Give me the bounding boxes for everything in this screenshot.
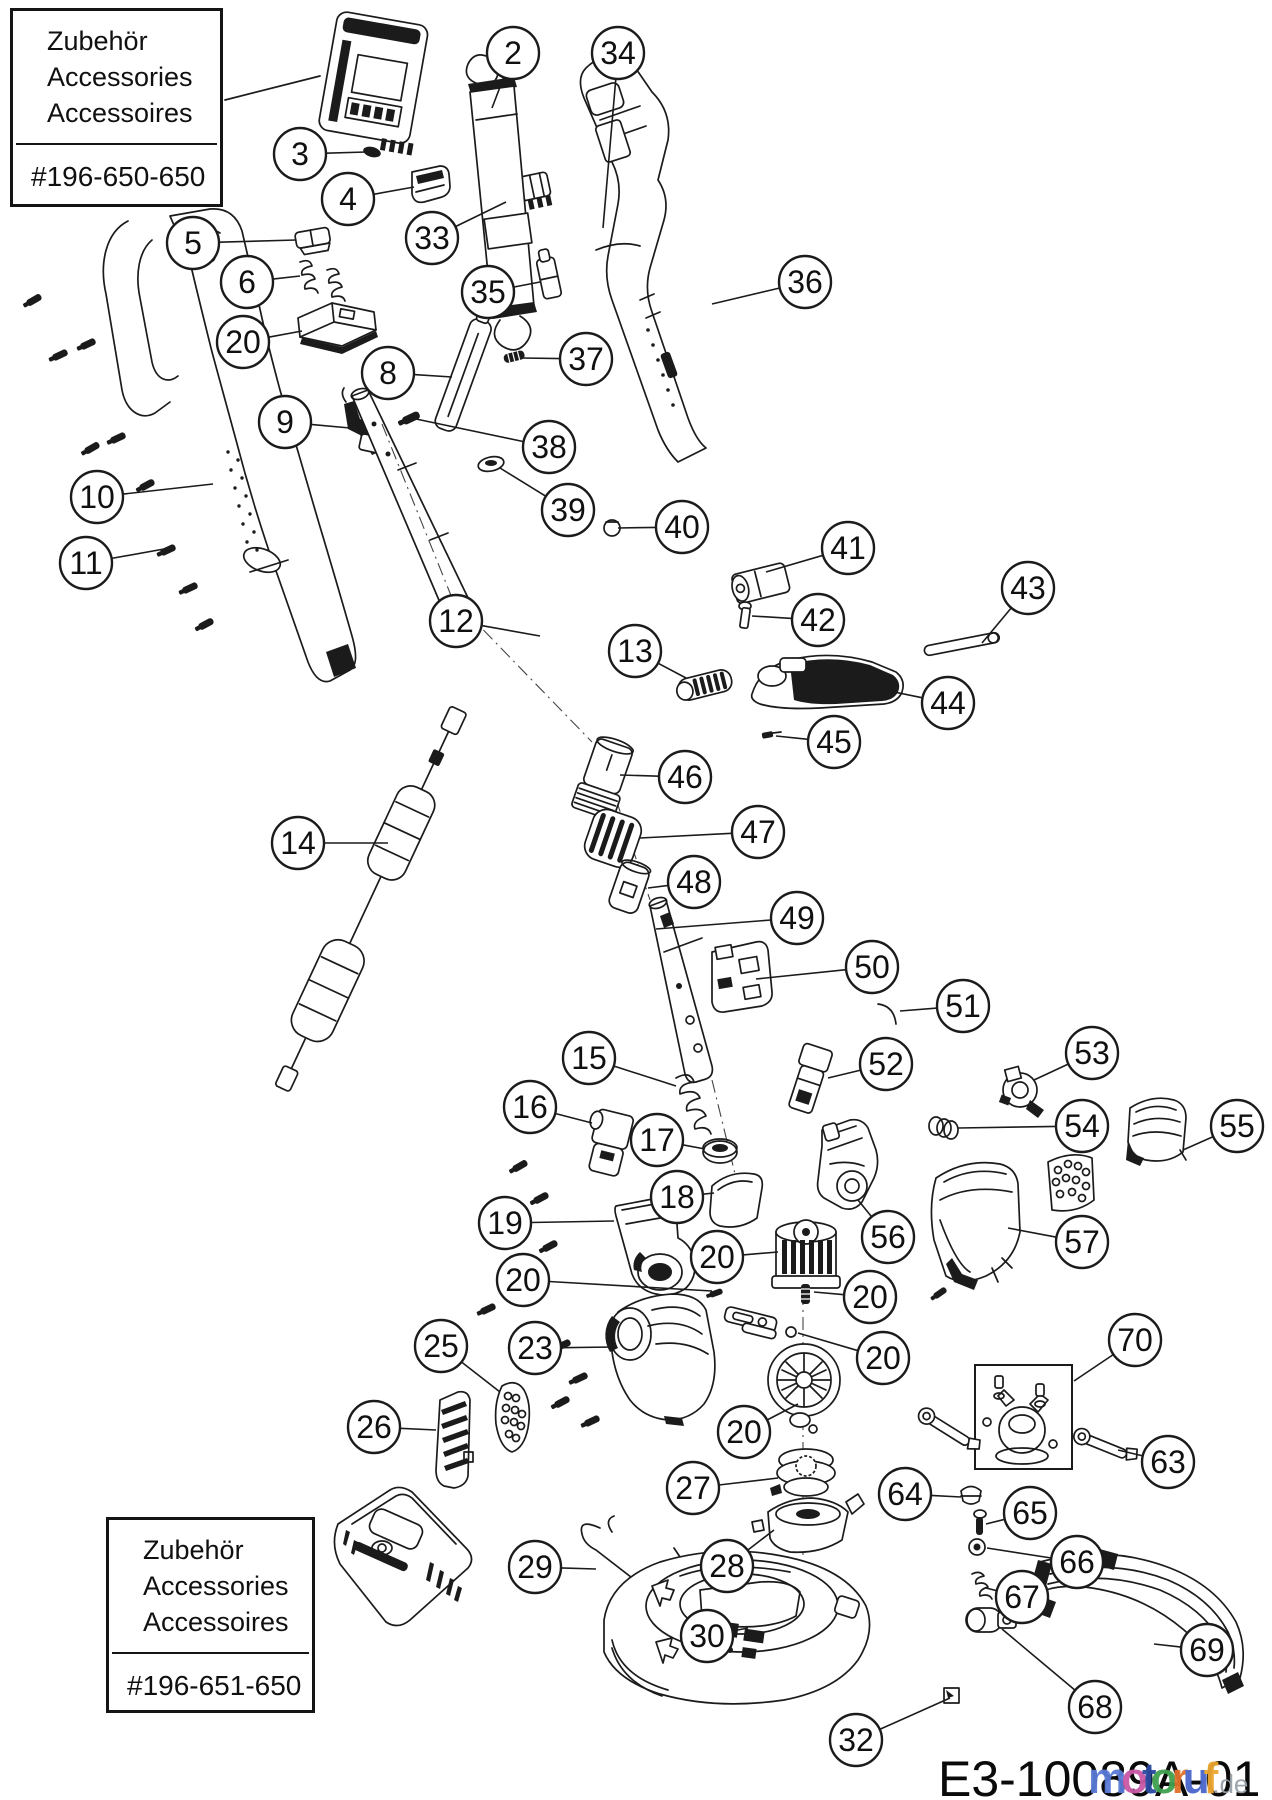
part-head-housing-23 bbox=[605, 1294, 715, 1426]
callout-number: 19 bbox=[487, 1205, 523, 1241]
callout-number: 51 bbox=[945, 988, 981, 1024]
callout-number: 36 bbox=[787, 264, 823, 300]
callout-number: 32 bbox=[838, 1722, 874, 1758]
watermark-motoruf: motoruf.de bbox=[1088, 1754, 1248, 1800]
callout-leader-line bbox=[531, 1221, 614, 1223]
callout-65[interactable]: 65 bbox=[986, 1487, 1056, 1539]
part-switch-50 bbox=[712, 942, 772, 1012]
callout-leader-line bbox=[1002, 1629, 1075, 1690]
callout-number: 53 bbox=[1074, 1035, 1110, 1071]
callout-leader-line bbox=[683, 1145, 705, 1149]
callout-number: 5 bbox=[184, 225, 202, 261]
part-guard-half-55 bbox=[1126, 1098, 1186, 1166]
callout-leader-line bbox=[858, 1200, 872, 1217]
part-cam-53 bbox=[999, 1066, 1044, 1118]
callout-53[interactable]: 53 bbox=[1034, 1027, 1118, 1080]
callout-number: 41 bbox=[830, 530, 866, 566]
callout-26[interactable]: 26 bbox=[348, 1401, 436, 1453]
part-wrench-left bbox=[916, 1405, 984, 1456]
callout-leader-line bbox=[648, 885, 668, 888]
callout-number: 35 bbox=[470, 274, 506, 310]
callout-leader-line bbox=[416, 419, 524, 442]
callout-number: 49 bbox=[779, 900, 815, 936]
callout-6[interactable]: 6 bbox=[221, 256, 300, 308]
callout-number: 43 bbox=[1010, 570, 1046, 606]
callout-number: 12 bbox=[438, 603, 474, 639]
callout-number: 38 bbox=[531, 429, 567, 465]
callout-number: 46 bbox=[667, 759, 703, 795]
callout-number: 66 bbox=[1059, 1544, 1095, 1580]
callout-number: 20 bbox=[505, 1262, 541, 1298]
callout-number: 26 bbox=[356, 1409, 392, 1445]
callout-number: 44 bbox=[930, 685, 966, 721]
callout-number: 27 bbox=[675, 1470, 711, 1506]
part-clip-51 bbox=[878, 1004, 896, 1024]
callout-19[interactable]: 19 bbox=[479, 1197, 614, 1249]
callout-leader-line bbox=[561, 1568, 596, 1569]
callout-leader-line bbox=[776, 736, 808, 739]
part-motor-housing-upper bbox=[580, 56, 706, 462]
callout-leader-line bbox=[1074, 1355, 1113, 1382]
part-vent-26 bbox=[436, 1392, 473, 1488]
callout-number: 16 bbox=[512, 1089, 548, 1125]
callout-number: 28 bbox=[709, 1548, 745, 1584]
callout-leader-line bbox=[1183, 1137, 1213, 1150]
callout-leader-line bbox=[269, 331, 302, 337]
callout-leader-line bbox=[987, 1548, 1051, 1558]
callout-number: 4 bbox=[339, 181, 357, 217]
callout-leader-line bbox=[743, 1252, 778, 1255]
callout-11[interactable]: 11 bbox=[60, 537, 164, 589]
accessory-part-number: #196-650-650 bbox=[13, 161, 220, 193]
watermark-letter: t bbox=[1142, 1754, 1151, 1800]
callout-number: 2 bbox=[504, 35, 522, 71]
part-front-handle-44 bbox=[752, 655, 903, 708]
callout-number: 8 bbox=[379, 355, 397, 391]
box-divider bbox=[16, 143, 217, 145]
callout-leader-line bbox=[752, 616, 792, 618]
callout-leader-line bbox=[814, 1292, 844, 1295]
part-spool-housing-28 bbox=[752, 1494, 864, 1552]
callout-56[interactable]: 56 bbox=[858, 1200, 914, 1263]
callout-46[interactable]: 46 bbox=[620, 751, 711, 803]
callout-leader-line bbox=[958, 1126, 1056, 1128]
centerline bbox=[382, 424, 452, 598]
callout-20[interactable]: 20 bbox=[217, 316, 302, 368]
callout-15[interactable]: 15 bbox=[563, 1032, 676, 1086]
part-screw-45 bbox=[762, 731, 781, 739]
watermark-letter: o bbox=[1121, 1754, 1142, 1800]
callout-leader-line bbox=[326, 152, 366, 153]
callout-number: 20 bbox=[699, 1239, 735, 1275]
part-cable-14 bbox=[262, 700, 479, 1097]
callout-number: 55 bbox=[1219, 1108, 1255, 1144]
part-lock-lever-13 bbox=[674, 668, 734, 703]
callout-18[interactable]: 18 bbox=[651, 1171, 714, 1223]
part-screw-37 bbox=[503, 350, 526, 364]
callout-64[interactable]: 64 bbox=[879, 1468, 961, 1520]
part-motor-20 bbox=[772, 1220, 840, 1288]
part-springs-6 bbox=[300, 261, 345, 301]
centerline bbox=[466, 612, 592, 742]
callout-number: 20 bbox=[865, 1340, 901, 1376]
callout-20[interactable]: 20 bbox=[691, 1231, 778, 1283]
callout-12[interactable]: 12 bbox=[430, 595, 540, 647]
part-fan-head-20 bbox=[768, 1344, 840, 1433]
callout-leader-line bbox=[482, 626, 540, 636]
callout-number: 14 bbox=[280, 825, 316, 861]
callout-leader-line bbox=[273, 276, 300, 279]
box-leader-line bbox=[225, 76, 320, 100]
callout-number: 37 bbox=[568, 341, 604, 377]
part-spring-54 bbox=[929, 1117, 958, 1139]
callout-leader-line bbox=[311, 424, 350, 428]
part-mesh-insert bbox=[1048, 1155, 1094, 1211]
parts-diagram-page: 2343433563536208379381039401141431242134… bbox=[0, 0, 1272, 1800]
callout-25[interactable]: 25 bbox=[415, 1320, 500, 1392]
part-circlip-20 bbox=[786, 1327, 796, 1337]
callout-leader-line bbox=[986, 1519, 1005, 1524]
part-gearbox-56 bbox=[818, 1120, 878, 1209]
part-coupler-46 bbox=[571, 733, 638, 821]
part-battery bbox=[316, 11, 434, 156]
callout-4[interactable]: 4 bbox=[322, 173, 414, 225]
callout-leader-line bbox=[614, 1066, 676, 1086]
part-charger bbox=[334, 1487, 471, 1625]
callout-number: 48 bbox=[676, 864, 712, 900]
callout-number: 3 bbox=[291, 136, 309, 172]
accessory-part-number: #196-651-650 bbox=[109, 1670, 312, 1702]
callout-37[interactable]: 37 bbox=[522, 333, 612, 385]
callout-number: 52 bbox=[868, 1046, 904, 1082]
accessories-label-fr: Accessoires bbox=[109, 1604, 312, 1640]
callout-leader-line bbox=[112, 549, 164, 558]
callout-52[interactable]: 52 bbox=[828, 1038, 912, 1090]
callout-number: 6 bbox=[238, 264, 256, 300]
callout-32[interactable]: 32 bbox=[830, 1698, 950, 1766]
watermark-letter: f bbox=[1204, 1754, 1213, 1800]
callout-leader-line bbox=[900, 1008, 937, 1011]
part-mesh-25 bbox=[496, 1383, 530, 1452]
part-ring-17 bbox=[703, 1139, 737, 1163]
callout-number: 70 bbox=[1117, 1322, 1153, 1358]
callout-leader-line bbox=[555, 1114, 592, 1124]
watermark-letter: r bbox=[1172, 1754, 1183, 1800]
callout-number: 9 bbox=[276, 404, 294, 440]
callout-70[interactable]: 70 bbox=[1074, 1314, 1161, 1381]
callout-48[interactable]: 48 bbox=[648, 856, 720, 908]
callout-16[interactable]: 16 bbox=[504, 1081, 592, 1133]
watermark-word: motoruf bbox=[1088, 1754, 1212, 1800]
callout-number: 33 bbox=[414, 220, 450, 256]
callout-leader-line bbox=[618, 527, 656, 528]
part-washer-66 bbox=[969, 1539, 985, 1555]
watermark-letter: u bbox=[1183, 1754, 1204, 1800]
part-pin-20 bbox=[801, 1284, 810, 1304]
box-divider bbox=[112, 1652, 309, 1654]
callout-39[interactable]: 39 bbox=[500, 468, 594, 536]
callout-42[interactable]: 42 bbox=[752, 594, 844, 646]
part-cylinder-16 bbox=[578, 1107, 634, 1177]
part-adapter-35 bbox=[534, 248, 562, 300]
callout-number: 47 bbox=[740, 814, 776, 850]
callout-51[interactable]: 51 bbox=[900, 980, 989, 1032]
callout-leader-line bbox=[1034, 1064, 1068, 1080]
part-spring-15 bbox=[676, 1075, 711, 1134]
part-clip-32 bbox=[944, 1688, 959, 1703]
callout-number: 20 bbox=[726, 1414, 762, 1450]
callout-layer: 2343433563536208379381039401141431242134… bbox=[60, 27, 1263, 1766]
callout-40[interactable]: 40 bbox=[618, 501, 708, 553]
callout-number: 54 bbox=[1064, 1108, 1100, 1144]
callout-63[interactable]: 63 bbox=[1118, 1436, 1194, 1488]
callout-43[interactable]: 43 bbox=[982, 562, 1054, 643]
callout-leader-line bbox=[522, 358, 560, 359]
callout-number: 20 bbox=[852, 1279, 888, 1315]
part-latch-4 bbox=[412, 166, 450, 202]
part-cap-40 bbox=[604, 520, 620, 536]
callout-number: 15 bbox=[571, 1040, 607, 1076]
callout-47[interactable]: 47 bbox=[640, 806, 784, 858]
callout-number: 11 bbox=[69, 545, 102, 581]
part-module-20 bbox=[298, 303, 378, 354]
callout-50[interactable]: 50 bbox=[756, 941, 898, 993]
callout-number: 56 bbox=[870, 1219, 906, 1255]
callout-leader-line bbox=[658, 663, 686, 678]
callout-number: 34 bbox=[600, 35, 636, 71]
callout-leader-line bbox=[1154, 1644, 1181, 1647]
callout-leader-line bbox=[828, 1070, 861, 1078]
callout-10[interactable]: 10 bbox=[71, 471, 213, 523]
callout-36[interactable]: 36 bbox=[712, 256, 831, 308]
watermark-letter: m bbox=[1088, 1754, 1121, 1800]
callout-number: 39 bbox=[550, 492, 586, 528]
callout-leader-line bbox=[931, 1495, 961, 1497]
part-wrench-63 bbox=[1071, 1425, 1139, 1466]
part-spool-27 bbox=[770, 1449, 835, 1496]
accessories-box-bottom: Zubehör Accessories Accessoires #196-651… bbox=[106, 1517, 315, 1713]
callout-number: 65 bbox=[1012, 1495, 1048, 1531]
callout-number: 18 bbox=[659, 1179, 695, 1215]
callout-leader-line bbox=[986, 1588, 997, 1591]
callout-number: 68 bbox=[1077, 1689, 1113, 1725]
callout-number: 23 bbox=[517, 1330, 553, 1366]
part-blade-holder bbox=[722, 1306, 779, 1339]
callout-number: 57 bbox=[1064, 1224, 1100, 1260]
callout-29[interactable]: 29 bbox=[509, 1541, 596, 1593]
callout-leader-line bbox=[414, 375, 452, 377]
part-cap-64 bbox=[961, 1487, 981, 1505]
accessories-label-en: Accessories bbox=[13, 59, 220, 95]
callout-number: 63 bbox=[1150, 1444, 1186, 1480]
callout-number: 42 bbox=[800, 602, 836, 638]
callout-number: 64 bbox=[887, 1476, 923, 1512]
part-screw-42 bbox=[739, 602, 751, 628]
callout-9[interactable]: 9 bbox=[259, 396, 350, 448]
screw-set-left bbox=[22, 293, 215, 633]
callout-number: 25 bbox=[423, 1328, 459, 1364]
callout-13[interactable]: 13 bbox=[609, 625, 686, 678]
callout-number: 30 bbox=[689, 1618, 725, 1654]
callout-number: 29 bbox=[517, 1549, 553, 1585]
callout-leader-line bbox=[374, 187, 414, 194]
callout-leader-line bbox=[561, 1347, 614, 1348]
callout-number: 13 bbox=[617, 633, 653, 669]
callout-27[interactable]: 27 bbox=[667, 1462, 778, 1514]
part-spool-holder-inset-70 bbox=[975, 1365, 1072, 1469]
callout-leader-line bbox=[719, 1478, 778, 1485]
part-spring-67 bbox=[972, 1572, 992, 1599]
callout-leader-line bbox=[880, 1698, 950, 1729]
accessories-label-en: Accessories bbox=[109, 1568, 312, 1604]
callout-number: 40 bbox=[664, 509, 700, 545]
part-clamp-41 bbox=[729, 562, 791, 605]
part-lower-shaft-49 bbox=[648, 895, 713, 1082]
watermark-domain-suffix: .de bbox=[1212, 1769, 1248, 1799]
callout-number: 10 bbox=[79, 479, 115, 515]
callout-number: 45 bbox=[816, 724, 852, 760]
callout-17[interactable]: 17 bbox=[631, 1114, 705, 1166]
callout-leader-line bbox=[462, 1362, 501, 1392]
callout-68[interactable]: 68 bbox=[1002, 1629, 1121, 1733]
part-washer-39 bbox=[477, 454, 505, 473]
accessories-label-fr: Accessoires bbox=[13, 95, 220, 131]
callout-55[interactable]: 55 bbox=[1183, 1100, 1263, 1152]
callout-number: 69 bbox=[1189, 1632, 1225, 1668]
accessories-label-de: Zubehör bbox=[13, 23, 220, 59]
part-half-shell-18 bbox=[710, 1173, 762, 1227]
callout-57[interactable]: 57 bbox=[1008, 1216, 1108, 1268]
accessories-label-de: Zubehör bbox=[109, 1532, 312, 1568]
accessories-box-top: Zubehör Accessories Accessoires #196-650… bbox=[10, 8, 223, 207]
part-rail-8 bbox=[433, 305, 497, 433]
callout-number: 67 bbox=[1004, 1579, 1040, 1615]
part-bolt-52 bbox=[784, 1043, 833, 1115]
part-button-5 bbox=[295, 227, 332, 256]
callout-number: 17 bbox=[639, 1122, 675, 1158]
callout-leader-line bbox=[400, 1428, 436, 1430]
callout-8[interactable]: 8 bbox=[362, 347, 452, 399]
callout-number: 50 bbox=[854, 949, 890, 985]
callout-leader-line bbox=[620, 775, 659, 776]
callout-leader-line bbox=[640, 833, 732, 838]
centerline bbox=[712, 1080, 738, 1186]
watermark-letter: o bbox=[1151, 1754, 1172, 1800]
callout-number: 20 bbox=[225, 324, 261, 360]
callout-leader-line bbox=[712, 288, 780, 304]
callout-69[interactable]: 69 bbox=[1154, 1624, 1233, 1676]
part-screw-65 bbox=[974, 1510, 986, 1535]
callout-45[interactable]: 45 bbox=[776, 716, 860, 768]
part-guard-57 bbox=[931, 1163, 1020, 1290]
callout-23[interactable]: 23 bbox=[509, 1322, 614, 1374]
